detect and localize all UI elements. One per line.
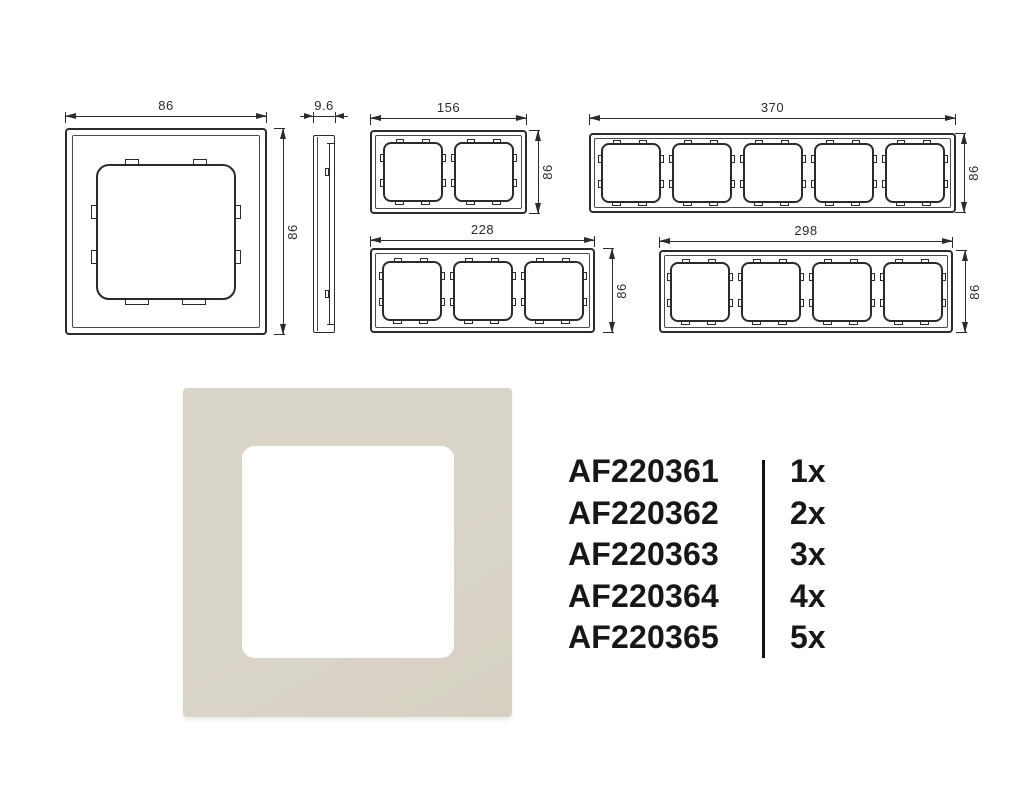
mount-tab-icon [709,202,718,206]
mount-tab-icon [897,140,905,144]
arrow-up-icon [961,133,967,144]
mount-tab-icon [800,299,804,307]
dim-label: 9.6 [314,98,334,113]
extension-tick [603,248,614,249]
aperture [814,143,874,203]
mount-tab-icon [492,201,501,205]
part-quantity: 2x [790,495,826,532]
mount-tab-icon [450,298,454,306]
part-code: AF220365 [566,619,762,656]
mount-tab-icon [731,180,735,188]
arrow-left-icon [65,113,76,119]
mount-tab-icon [521,272,525,280]
mount-tab-icon [583,272,587,280]
profile-back-line [329,143,330,325]
mount-tab-icon [125,299,149,305]
dim-height-2gang: 86 [538,130,539,214]
profile-cap [327,143,334,144]
mount-tab-icon [683,202,692,206]
drawing-side-profile [313,135,335,333]
mount-tab-icon [512,298,516,306]
profile-clip [325,290,329,298]
mount-tab-icon [513,154,517,162]
aperture [883,262,943,322]
mount-tab-icon [395,201,404,205]
dim-height-3gang: 86 [612,248,613,333]
mount-tab-icon [466,201,475,205]
arrow-left-icon [370,115,381,121]
mount-tab-icon [669,180,673,188]
mount-tab-icon [729,299,733,307]
drawing-single-frame-front [65,128,267,335]
part-code: AF220364 [566,578,762,615]
extension-tick [956,250,967,251]
mount-tab-icon [800,273,804,281]
mount-tab-icon [464,320,473,324]
mount-tab-icon [823,321,832,325]
mount-tab-icon [451,154,455,162]
mount-tab-icon [512,272,516,280]
extension-tick [529,130,540,131]
aperture [524,261,584,321]
mount-tab-icon [753,259,761,263]
part-row: AF220361 1x [566,451,896,493]
aperture [741,262,801,322]
mount-tab-icon [441,272,445,280]
mount-tab-icon [660,180,664,188]
extension-tick [335,112,336,123]
dim-label: 86 [285,224,300,239]
mount-tab-icon [91,205,97,219]
mount-tab-icon [521,298,525,306]
aperture [743,143,803,203]
extension-tick [659,237,660,248]
mount-tab-icon [379,298,383,306]
dim-width-4gang: 298 [659,241,953,242]
mount-tab-icon [490,320,499,324]
mount-tab-icon [896,202,905,206]
mount-tab-icon [682,259,690,263]
mount-tab-icon [882,155,886,163]
mount-tab-icon [740,155,744,163]
aperture [670,262,730,322]
dim-width-single: 86 [65,116,267,117]
arrow-right-icon [304,113,313,119]
product-photo-frame [183,388,512,717]
mount-tab-icon [944,180,948,188]
arrow-left-icon [659,238,670,244]
mount-tab-icon [802,180,806,188]
dim-height-4gang: 86 [965,250,966,333]
part-quantity: 5x [790,619,826,656]
dim-width-3gang: 228 [370,240,595,241]
mount-tab-icon [396,139,404,143]
mount-tab-icon [379,272,383,280]
mount-tab-icon [852,140,860,144]
mount-tab-icon [681,321,690,325]
mount-tab-icon [708,259,716,263]
part-quantity: 4x [790,578,826,615]
aperture [383,142,443,202]
product-frame-opening [242,446,454,658]
part-number-list: AF220361 1x AF220362 2x AF220363 3x AF22… [566,451,896,661]
mount-tab-icon [707,321,716,325]
mount-tab-icon [380,154,384,162]
mount-tab-icon [754,202,763,206]
arrow-up-icon [280,128,286,139]
aperture [454,142,514,202]
mount-tab-icon [755,140,763,144]
extension-tick [952,237,953,248]
drawing-5gang-frame [589,133,956,213]
dim-depth-profile: 9.6 [300,116,348,117]
mount-tab-icon [450,272,454,280]
mount-tab-icon [235,205,241,219]
part-code: AF220362 [566,495,762,532]
extension-tick [65,112,66,123]
mount-tab-icon [809,299,813,307]
mount-tab-icon [467,139,475,143]
mount-tab-icon [667,273,671,281]
profile-face-line [317,137,318,331]
mount-tab-icon [419,320,428,324]
dim-label: 86 [967,284,982,299]
mount-tab-icon [781,140,789,144]
mount-tab-icon [880,273,884,281]
dim-height-single: 86 [283,128,284,335]
mount-tab-icon [613,140,621,144]
mount-tab-icon [638,202,647,206]
part-row: AF220363 3x [566,534,896,576]
mount-tab-icon [871,299,875,307]
mount-tab-icon [669,155,673,163]
dim-label: 370 [761,100,784,115]
part-quantity: 1x [790,453,826,490]
arrow-left-icon [589,115,600,121]
mount-tab-icon [740,180,744,188]
mount-tab-icon [809,273,813,281]
mount-tab-icon [895,259,903,263]
mount-tab-icon [873,180,877,188]
mount-tab-icon [922,202,931,206]
extension-tick [526,114,527,125]
mount-tab-icon [394,258,402,262]
mount-tab-icon [535,320,544,324]
extension-tick [274,128,285,129]
dim-label: 86 [540,164,555,179]
mount-tab-icon [894,321,903,325]
extension-tick [313,112,314,123]
aperture [382,261,442,321]
mount-tab-icon [826,140,834,144]
mount-tab-icon [920,321,929,325]
extension-tick [603,332,614,333]
extension-tick [956,332,967,333]
extension-tick [529,213,540,214]
aperture [672,143,732,203]
mount-tab-icon [193,159,207,165]
arrow-left-icon [335,113,344,119]
mount-tab-icon [738,299,742,307]
mount-tab-icon [491,258,499,262]
mount-tab-icon [811,155,815,163]
part-code: AF220363 [566,536,762,573]
mount-tab-icon [182,299,206,305]
mount-tab-icon [923,140,931,144]
mount-tab-icon [752,321,761,325]
extension-tick [370,114,371,125]
mount-tab-icon [660,155,664,163]
mount-tab-icon [851,202,860,206]
mount-tab-icon [802,155,806,163]
mount-tab-icon [562,258,570,262]
mount-tab-icon [780,202,789,206]
profile-cap [327,324,334,325]
mount-tab-icon [942,299,946,307]
extension-tick [589,114,590,125]
mount-tab-icon [612,202,621,206]
mount-tab-icon [583,298,587,306]
mount-tab-icon [942,273,946,281]
mount-tab-icon [441,298,445,306]
mount-tab-icon [738,273,742,281]
mount-tab-icon [598,155,602,163]
dim-label: 156 [437,100,460,115]
mount-tab-icon [235,250,241,264]
drawing-4gang-frame [659,250,953,333]
arrow-up-icon [609,248,615,259]
dim-label: 228 [471,222,494,237]
extension-tick [370,236,371,247]
part-quantity: 3x [790,536,826,573]
arrow-up-icon [962,250,968,261]
mount-tab-icon [778,321,787,325]
aperture [601,143,661,203]
extension-tick [955,212,966,213]
mount-tab-icon [561,320,570,324]
arrow-up-icon [535,130,541,141]
mount-tab-icon [684,140,692,144]
dim-label: 298 [794,223,817,238]
mount-tab-icon [380,179,384,187]
mount-tab-icon [493,139,501,143]
mount-tab-icon [882,180,886,188]
extension-tick [594,236,595,247]
mount-tab-icon [421,201,430,205]
mount-tab-icon [811,180,815,188]
mount-tab-icon [598,180,602,188]
extension-tick [955,133,966,134]
mount-tab-icon [465,258,473,262]
mount-tab-icon [880,299,884,307]
dim-width-2gang: 156 [370,118,527,119]
aperture [885,143,945,203]
dim-label: 86 [158,98,173,113]
dim-height-5gang: 86 [964,133,965,213]
dim-label: 86 [614,283,629,298]
spec-sheet: 86 86 9.6 156 86 [0,0,1024,796]
mount-tab-icon [849,321,858,325]
dim-width-5gang: 370 [589,118,956,119]
mount-tab-icon [536,258,544,262]
mount-tab-icon [731,155,735,163]
mount-tab-icon [873,155,877,163]
mount-tab-icon [125,159,139,165]
mount-tab-icon [871,273,875,281]
mount-tab-icon [422,139,430,143]
mount-tab-icon [91,250,97,264]
extension-tick [266,112,267,123]
mount-tab-icon [442,154,446,162]
arrow-left-icon [370,237,381,243]
mount-tab-icon [824,259,832,263]
extension-tick [274,334,285,335]
part-row: AF220362 2x [566,493,896,535]
mount-tab-icon [825,202,834,206]
aperture [453,261,513,321]
mount-tab-icon [451,179,455,187]
mount-tab-icon [729,273,733,281]
dim-label: 86 [966,165,981,180]
extension-tick [955,114,956,125]
mount-tab-icon [850,259,858,263]
mount-tab-icon [639,140,647,144]
mount-tab-icon [667,299,671,307]
mount-tab-icon [710,140,718,144]
mount-tab-icon [393,320,402,324]
mount-tab-icon [513,179,517,187]
drawing-2gang-frame [370,130,527,214]
mount-tab-icon [779,259,787,263]
part-row: AF220365 5x [566,617,896,659]
aperture [812,262,872,322]
part-code: AF220361 [566,453,762,490]
drawing-3gang-frame [370,248,595,333]
aperture [96,164,236,300]
mount-tab-icon [420,258,428,262]
part-row: AF220364 4x [566,576,896,618]
profile-clip [325,168,329,176]
mount-tab-icon [442,179,446,187]
mount-tab-icon [944,155,948,163]
mount-tab-icon [921,259,929,263]
